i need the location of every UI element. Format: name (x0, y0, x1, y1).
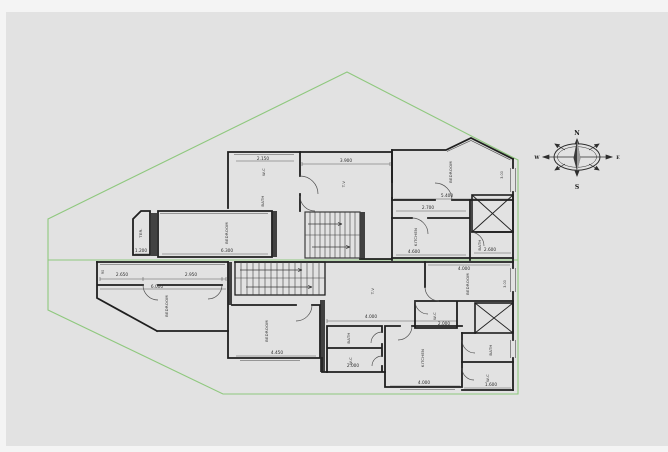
room-bath-top: BATH (260, 195, 265, 206)
floor-plan-canvas: 2.150 3.900 5.400 2.700 4.600 2.600 1.20… (0, 0, 668, 452)
dim-wc-top: 2.150 (257, 156, 270, 162)
compass-east-label: E (616, 155, 620, 161)
room-wc-low: W.C (432, 312, 437, 320)
room-bed4: BEDROOM (465, 273, 470, 295)
room-bed3: BEDROOM (264, 320, 269, 342)
dim-lobby-b: 2.950 (185, 272, 198, 278)
dim-hall-top: 3.900 (340, 158, 353, 164)
dim-bath1: 2.600 (484, 247, 497, 253)
dim-hall2: 4.000 (365, 314, 378, 320)
room-bed1: BEDROOM (448, 161, 453, 183)
dim-kitchen1: 4.600 (408, 249, 421, 255)
dim-bed1: 5.400 (441, 193, 454, 199)
dim-wc-low: 2.000 (438, 321, 451, 327)
room-bath-c: BATH (488, 344, 493, 355)
room-balcony: TER. (138, 228, 143, 238)
dim-kitchen2: 4.000 (418, 380, 431, 386)
dim-door-width: 90 (101, 270, 105, 274)
room-bed2: BEDROOM (224, 222, 229, 244)
compass-west-label: W (533, 155, 540, 161)
dim-lobby-total: 6.000 (151, 284, 164, 290)
room-bath-b: W.C (348, 357, 353, 365)
room-hall1: T.V (341, 181, 346, 189)
dim-bed2: 6.300 (221, 248, 234, 254)
dim-window-1: 3.00 (500, 171, 504, 179)
floor-plan-screenshot: 2.150 3.900 5.400 2.700 4.600 2.600 1.20… (0, 0, 668, 452)
compass-south-label: S (575, 184, 579, 191)
room-bath-a: BATH (346, 332, 351, 343)
dim-balcony: 1.200 (135, 248, 148, 254)
dim-bed3: 4.450 (271, 350, 284, 356)
room-bed-low: BEDROOM (164, 295, 169, 317)
room-kitchen1: KITCHEN (413, 228, 418, 246)
compass-north-label: N (574, 130, 580, 137)
dim-window-2: 3.00 (503, 280, 507, 288)
dim-bed4: 4.000 (458, 266, 471, 272)
room-wc-d: W.C (485, 374, 490, 382)
room-bath1: BATH (477, 239, 482, 250)
dim-corridor: 2.700 (422, 205, 435, 211)
room-wc1: W.C (261, 168, 266, 176)
room-hall2: T.V (370, 288, 375, 296)
room-kitchen2: KITCHEN (420, 349, 425, 367)
dim-lobby-a: 2.650 (116, 272, 129, 278)
